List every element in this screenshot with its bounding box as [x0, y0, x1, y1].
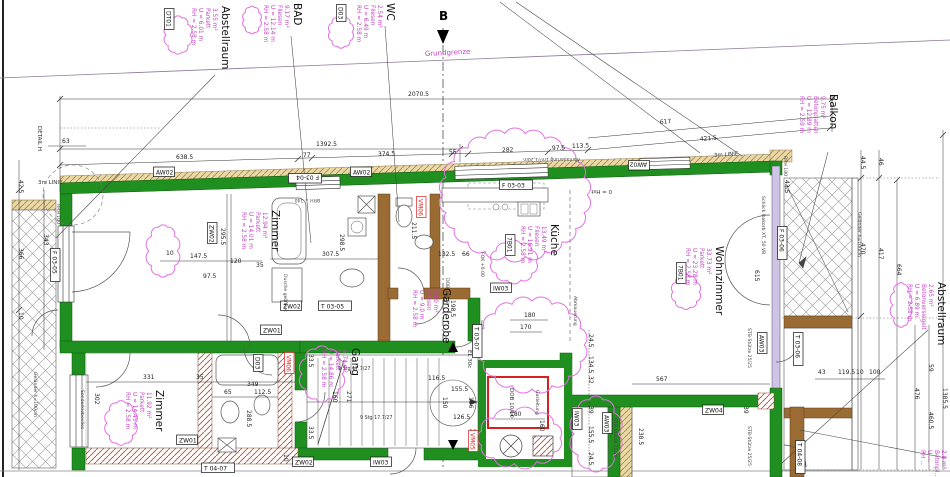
- tag-aw02: AW02: [351, 167, 372, 177]
- svg-text:VM06: VM06: [417, 199, 424, 216]
- note-label: DOB 10/10: [508, 388, 514, 418]
- svg-text:F 03-04: F 03-04: [296, 174, 319, 181]
- dim-label: 374.5: [378, 150, 396, 158]
- dim-label: 35: [256, 262, 264, 269]
- svg-text:AW03: AW03: [758, 335, 765, 353]
- dim-label: 349: [247, 381, 259, 388]
- tag-zw02: ZW02: [293, 457, 314, 467]
- svg-text:6.74 m²: 6.74 m²: [341, 350, 348, 373]
- note-label: Grundgrenze: [425, 48, 471, 58]
- svg-text:ZW04: ZW04: [705, 408, 723, 415]
- svg-text:AW03: AW03: [603, 415, 610, 433]
- tag-vm06: VM06: [285, 353, 295, 374]
- dim-label: 55: [449, 149, 457, 156]
- svg-text:11.92 m²: 11.92 m²: [145, 392, 152, 418]
- svg-text:IW03: IW03: [493, 286, 509, 293]
- note-label: Dusche geöffnet: [282, 274, 288, 312]
- note-label: RRH 100: [782, 156, 788, 176]
- dim-label: 126: [467, 397, 474, 409]
- svg-text:VM06: VM06: [285, 355, 292, 372]
- room-label-garderobe: Garderobe5.00 m²FliesenU = 9.0 mRH = 2.5…: [411, 288, 452, 343]
- svg-text:3.55 m²: 3.55 m²: [211, 8, 218, 31]
- room-label-balkon: Balkon9.75 m²BetonplattenU = 12.89 mRH =…: [798, 94, 839, 134]
- svg-text:RH = 2.58 m: RH = 2.58 m: [411, 290, 417, 328]
- note-label: 0 = Hst: [590, 188, 612, 194]
- dim-label: 150: [441, 397, 448, 409]
- svg-text:U = 16.91 m: U = 16.91 m: [526, 226, 532, 263]
- svg-text:ZW02: ZW02: [295, 460, 313, 467]
- dim-label: 302: [93, 393, 100, 405]
- svg-text:2.65 m²: 2.65 m²: [927, 284, 934, 307]
- svg-text:RH = 2.58 m: RH = 2.58 m: [355, 5, 361, 43]
- note-label: Geländer h=100cm: [856, 212, 862, 258]
- dim-label: 112.5: [254, 389, 271, 396]
- svg-text:U = 12.14 m: U = 12.14 m: [269, 5, 275, 42]
- svg-text:RH …: RH …: [919, 450, 925, 466]
- note-label: Abmauerung 1m²/1,20m: [523, 156, 580, 162]
- dim-label: 460.5: [927, 412, 934, 429]
- svg-text:RH = 2.58 m: RH = 2.58 m: [124, 392, 130, 430]
- dim-label: 1392.5: [316, 141, 337, 148]
- tag-t-03-07: T 03-07: [473, 325, 483, 358]
- dim-label: 33.5: [307, 426, 314, 440]
- dim-label: 288.5: [245, 410, 252, 427]
- svg-text:Betonversiegelt: Betonversiegelt: [920, 284, 926, 330]
- svg-text:U = 6.01 m: U = 6.01 m: [197, 8, 203, 42]
- note-label: EL 30c: [466, 350, 472, 368]
- svg-text:RH = 2.58 m: RH = 2.58 m: [684, 248, 690, 286]
- svg-text:Parkett: Parkett: [254, 212, 260, 233]
- tag-dt01: DT01: [165, 9, 175, 30]
- dim-label: 119.5: [838, 369, 855, 376]
- dim-label: 10: [856, 369, 864, 376]
- svg-text:WC: WC: [384, 3, 396, 21]
- svg-text:12.94 m²: 12.94 m²: [261, 212, 268, 238]
- dim-label: 617: [660, 118, 672, 126]
- basin-2: [221, 401, 239, 423]
- svg-text:RH = 2.58 m: RH = 2.58 m: [262, 5, 268, 43]
- dim-label: 155.5: [587, 426, 594, 443]
- dim-label: 65: [224, 389, 232, 396]
- washbasin: [340, 269, 364, 287]
- svg-text:Küche: Küche: [548, 224, 560, 256]
- dim-label: 476: [913, 388, 920, 400]
- dim-label: 132.5: [438, 251, 455, 258]
- dim-label: 59: [927, 364, 934, 372]
- svg-text:U = 12.89 m: U = 12.89 m: [805, 96, 811, 133]
- svg-text:ZW01: ZW01: [263, 328, 281, 335]
- note-label: Sonderklebevlies: [79, 390, 85, 430]
- dim-label: 39: [742, 406, 749, 414]
- tag-zw01: ZW01: [261, 325, 282, 335]
- dim-label: 2070.5: [408, 91, 429, 98]
- svg-text:U = 6.89 m: U = 6.89 m: [913, 284, 919, 318]
- tag-iw03: IW03: [371, 457, 392, 467]
- svg-text:U = 9.0 m: U = 9.0 m: [418, 290, 424, 320]
- svg-text:Fliesen: Fliesen: [276, 5, 282, 26]
- tag-d03: D03: [337, 5, 347, 22]
- tag-7b01: 7B01: [506, 235, 516, 256]
- note-label: STB-Stütze 25/25: [612, 418, 618, 458]
- note-label: 3m LINIE: [38, 180, 63, 186]
- revision-cloud: [243, 6, 262, 34]
- room-label-abstellraum-top: Abstellraum3.55 m²ParkettU = 6.01 mRH = …: [190, 6, 231, 69]
- tag-t-03-06: T 03-06: [794, 333, 804, 366]
- note-label: STB-Stütze 25/25: [746, 328, 752, 368]
- tag-aw02: AW02: [629, 161, 650, 171]
- tag-vm05: VM05: [469, 431, 479, 452]
- dim-label: 33.5: [307, 354, 314, 368]
- svg-text:2.54 m²: 2.54 m²: [376, 5, 383, 28]
- svg-text:AW02: AW02: [353, 170, 371, 177]
- svg-text:RH = 2.58 m: RH = 2.58 m: [320, 350, 326, 388]
- dim-label: 97.5: [203, 273, 217, 280]
- svg-text:2.8 m²: 2.8 m²: [940, 450, 947, 469]
- tag-zw01: ZW01: [177, 435, 198, 445]
- svg-text:T 03-06: T 03-06: [794, 334, 801, 358]
- note-label: Gasleitung: [534, 390, 540, 415]
- svg-text:33.73 m²: 33.73 m²: [705, 248, 712, 274]
- dim-label: 664: [895, 264, 902, 276]
- svg-text:Wohnzimmer: Wohnzimmer: [713, 246, 725, 316]
- floor-plan-canvas: 2070.51392.563638.577374.55528297.5113.5…: [0, 0, 950, 477]
- tag-f-03-06: F 03-06: [778, 227, 788, 260]
- svg-text:Zimmer: Zimmer: [153, 390, 165, 432]
- dim-label: 97.5: [552, 145, 566, 152]
- dim-label: 46: [877, 158, 884, 166]
- tag-iw03: IW03: [573, 409, 583, 430]
- dim-label: 615: [753, 270, 760, 282]
- tag-aw03: AW03: [603, 413, 613, 434]
- tag-f-03-05: F 03-05: [51, 249, 61, 282]
- svg-text:F 03-06: F 03-06: [778, 229, 785, 252]
- dim-label: 211.5: [410, 222, 417, 239]
- svg-text:T 03-07: T 03-07: [473, 326, 480, 350]
- room-label-zimmer-bottom: Zimmer11.92 m²ParkettU = 14.45 mRH = 2.5…: [124, 390, 165, 432]
- svg-text:U = 14.86 m: U = 14.86 m: [327, 350, 333, 387]
- tag-f-03-04: F 03-04: [289, 174, 322, 184]
- svg-text:Betonplatten: Betonplatten: [812, 96, 818, 134]
- dim-label: 32: [587, 376, 594, 384]
- note-label: Geländer h=100cm: [32, 372, 38, 418]
- room-label-wc: WC2.54 m²FliesenU = 6.49 mRH = 2.58 m: [355, 3, 396, 43]
- room-label-bad: BAD9.17 m²FliesenU = 12.14 mRH = 2.58 m: [262, 3, 303, 43]
- kitchen-counter: [442, 188, 548, 202]
- svg-text:7B01: 7B01: [506, 237, 513, 253]
- dim-label: 10: [282, 454, 289, 462]
- dim-label: 160: [538, 420, 545, 432]
- note-label: BRH = 140: [295, 197, 320, 203]
- svg-text:9.75 m²: 9.75 m²: [819, 96, 826, 119]
- tag-vm06: VM06: [417, 197, 427, 218]
- dim-label: 126.5: [453, 414, 470, 421]
- tag-iw03: IW03: [491, 283, 512, 293]
- dim-label: 77: [303, 152, 311, 159]
- dim-label: 66: [462, 251, 470, 258]
- note-label: Schöck Isokorb XT, 50 VB: [760, 196, 766, 254]
- svg-text:Abstellraum: Abstellraum: [219, 6, 231, 69]
- svg-text:U = 14.01 m: U = 14.01 m: [247, 212, 253, 249]
- note-label: 9 Stg 17.7/27: [360, 415, 392, 421]
- tag-d03: D03: [254, 355, 264, 372]
- svg-text:AW02: AW02: [629, 161, 647, 168]
- dim-label: 282: [502, 147, 514, 154]
- toilet-2: [254, 395, 270, 415]
- svg-text:Gang: Gang: [349, 348, 361, 376]
- svg-text:5.00 m²: 5.00 m²: [432, 290, 439, 313]
- svg-text:T 04-08: T 04-08: [796, 442, 803, 466]
- tag-aw02: AW02: [154, 167, 175, 177]
- tag-t-04-08: T 04-08: [796, 441, 806, 474]
- dim-label: 307.5: [322, 251, 339, 258]
- svg-text:VM05: VM05: [469, 433, 476, 450]
- svg-text:AW02: AW02: [156, 170, 174, 177]
- dim-label: 147.5: [190, 253, 207, 260]
- dim-label: 10: [166, 250, 174, 257]
- svg-text:Fliesen: Fliesen: [425, 290, 431, 311]
- svg-text:Fliesen: Fliesen: [533, 226, 539, 247]
- svg-text:RH = 2.59 m: RH = 2.59 m: [798, 96, 804, 134]
- room-label-abstellraum-right: Abstellraum2.65 m²BetonversiegeltU = 6.8…: [906, 282, 947, 345]
- svg-text:D03: D03: [337, 7, 344, 19]
- dim-label: 238.5: [637, 428, 644, 445]
- svg-text:Parkett: Parkett: [138, 392, 144, 413]
- svg-text:Parkett: Parkett: [204, 8, 210, 29]
- dim-label: 1385.5: [941, 388, 948, 409]
- svg-text:Parkett: Parkett: [334, 350, 340, 371]
- dim-label: 44.5: [859, 156, 866, 170]
- dim-label: 160: [331, 391, 338, 403]
- svg-text:RH = 2.58 m: RH = 2.58 m: [240, 212, 246, 250]
- dim-label: 42.5: [17, 180, 24, 194]
- revision-cloud: [146, 225, 180, 277]
- dim-label: 39: [587, 406, 594, 414]
- svg-text:RH = 2.58 m: RH = 2.58 m: [519, 226, 525, 264]
- room-label-abstellraum-corner: Abstellraum2.8 m²Betonpl…U …RH …: [919, 448, 950, 477]
- dim-label: 421.5: [700, 135, 718, 143]
- note-label: B: [439, 9, 448, 23]
- svg-text:9.17 m²: 9.17 m²: [283, 5, 290, 28]
- svg-text:DT01: DT01: [165, 11, 172, 27]
- svg-text:F 03-03: F 03-03: [502, 183, 525, 190]
- dim-label: 24.5: [587, 452, 594, 466]
- dim-label: 343: [42, 234, 49, 246]
- floor-plan-sheet: 2070.51392.563638.577374.55528297.5113.5…: [0, 0, 950, 477]
- svg-text:RH = 2.58 m: RH = 2.58 m: [190, 8, 196, 46]
- dim-label: 331: [143, 374, 155, 381]
- svg-text:U = 14.45 m: U = 14.45 m: [131, 392, 137, 429]
- svg-text:Betonpl…: Betonpl…: [933, 450, 939, 477]
- dim-label: 170: [520, 324, 532, 331]
- svg-text:T 04-07: T 04-07: [203, 466, 227, 473]
- dim-label: 134.5: [587, 356, 594, 373]
- glazing-wall: [772, 166, 780, 388]
- dim-label: 638.5: [176, 154, 193, 161]
- dim-label: 43: [818, 369, 826, 376]
- dim-label: 24.5: [587, 334, 594, 348]
- tag-t-03-05: T 03-05: [319, 301, 352, 311]
- dim-label: 295.5: [219, 228, 226, 245]
- tag-zw02: ZW02: [208, 223, 218, 244]
- dim-label: 180: [524, 312, 536, 319]
- svg-text:Fliesen: Fliesen: [369, 5, 375, 26]
- svg-text:U = 23.28 m: U = 23.28 m: [691, 248, 697, 285]
- dim-label: 116.5: [428, 375, 445, 382]
- tag-zw04: ZW04: [703, 405, 724, 415]
- svg-text:7B01: 7B01: [677, 265, 684, 281]
- dim-label: 43.5: [783, 180, 790, 194]
- note-label: DETAIL H: [36, 126, 42, 151]
- tag-aw03: AW03: [758, 333, 768, 354]
- svg-text:IW03: IW03: [373, 460, 389, 467]
- dim-label: 271: [345, 391, 352, 403]
- dim-label: 100: [869, 369, 881, 376]
- dim-label: 10: [17, 312, 24, 320]
- room-label-zimmer-top: Zimmer12.94 m²ParkettU = 14.01 mRH = 2.5…: [240, 210, 281, 252]
- dim-label: 63: [62, 138, 70, 145]
- svg-text:D03: D03: [254, 357, 261, 369]
- dim-label: 567: [656, 376, 668, 383]
- dim-label: 35: [196, 374, 204, 381]
- dim-label: 417: [877, 248, 884, 260]
- svg-text:BAD: BAD: [291, 3, 303, 25]
- note-label: FOK +0.00: [479, 252, 485, 277]
- svg-text:U = 6.49 m: U = 6.49 m: [362, 5, 368, 39]
- tag-f-03-03: F 03-03: [500, 180, 533, 190]
- note-label: STB-Stütze 25/25: [746, 426, 752, 466]
- svg-text:Zimmer: Zimmer: [269, 210, 281, 252]
- svg-text:F 03-05: F 03-05: [51, 251, 58, 274]
- svg-text:RH = 2.58 m: RH = 2.58 m: [906, 284, 912, 322]
- site-boundary-line: [0, 40, 950, 78]
- note-label: Abmauerung: [572, 296, 578, 326]
- tag-t-04-07: T 04-07: [202, 463, 235, 473]
- dim-label: 155.5: [451, 386, 468, 393]
- dim-label: 366: [17, 248, 24, 260]
- svg-text:13.49 m²: 13.49 m²: [540, 226, 547, 252]
- svg-text:Parkett: Parkett: [698, 248, 704, 269]
- room-label-wohnzimmer: Wohnzimmer33.73 m²ParkettU = 23.28 mRH =…: [684, 246, 725, 316]
- svg-text:ZW02: ZW02: [208, 225, 215, 243]
- dim-label: 298.5: [338, 234, 345, 251]
- svg-text:IW03: IW03: [573, 411, 580, 427]
- note-label: RRH 100: [55, 204, 61, 224]
- svg-text:T 03-05: T 03-05: [320, 304, 344, 311]
- svg-text:ZW01: ZW01: [179, 438, 197, 445]
- dim-label: 120: [230, 258, 242, 265]
- svg-text:Balkon: Balkon: [827, 94, 839, 129]
- svg-text:Garderobe: Garderobe: [440, 288, 452, 343]
- svg-text:U …: U …: [926, 450, 932, 462]
- svg-text:Abstellraum: Abstellraum: [935, 282, 947, 345]
- dim-label: 113.5: [572, 142, 590, 150]
